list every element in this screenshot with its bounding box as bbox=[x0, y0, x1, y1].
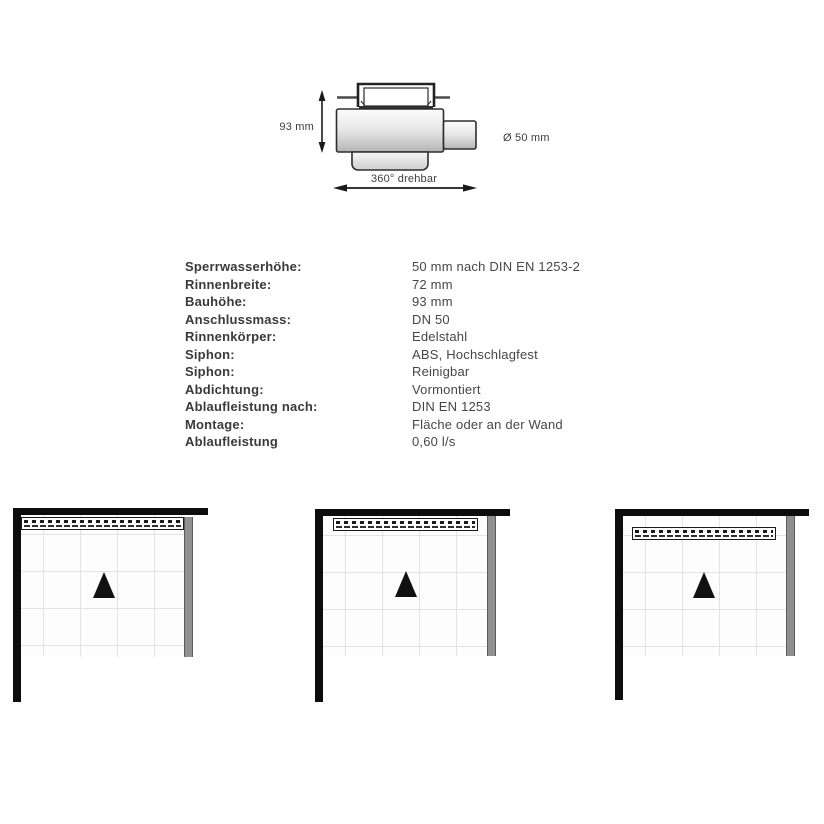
spec-label: Siphon: bbox=[185, 363, 412, 381]
drain-base bbox=[352, 152, 428, 170]
spec-value: 93 mm bbox=[412, 293, 615, 311]
spec-value: DN 50 bbox=[412, 311, 615, 329]
drain-grate bbox=[358, 84, 434, 109]
channel-grate-pattern bbox=[24, 525, 181, 527]
spec-row: Ablaufleistung0,60 l/s bbox=[185, 433, 615, 451]
spec-label: Rinnenkörper: bbox=[185, 328, 412, 346]
spec-value: 72 mm bbox=[412, 276, 615, 294]
drain-channel-strip bbox=[333, 518, 478, 531]
channel-grate-pattern bbox=[336, 521, 475, 524]
spec-row: Siphon:Reinigbar bbox=[185, 363, 615, 381]
slope-triangle bbox=[693, 572, 715, 598]
technical-drawing: 93 mm Ø 50 mm 360° drehbar bbox=[270, 78, 560, 196]
glass-panel bbox=[786, 516, 795, 656]
spec-value: 50 mm nach DIN EN 1253-2 bbox=[412, 258, 615, 276]
spec-row: Siphon:ABS, Hochschlagfest bbox=[185, 346, 615, 364]
spec-value: Vormontiert bbox=[412, 381, 615, 399]
spec-value: DIN EN 1253 bbox=[412, 398, 615, 416]
rotation-label: 360° drehbar bbox=[371, 173, 437, 185]
datasheet-page: 93 mm Ø 50 mm 360° drehbar Sperrwasserhö… bbox=[0, 0, 824, 824]
wall-top bbox=[13, 508, 208, 515]
drain-channel-strip bbox=[21, 517, 184, 530]
drain-channel-strip bbox=[632, 527, 776, 540]
spec-value: Fläche oder an der Wand bbox=[412, 416, 615, 434]
spec-label: Abdichtung: bbox=[185, 381, 412, 399]
wall-top bbox=[615, 509, 809, 516]
rotation-dimension-arrow bbox=[333, 184, 477, 191]
wall-left bbox=[315, 509, 323, 702]
spec-row: Sperrwasserhöhe:50 mm nach DIN EN 1253-2 bbox=[185, 258, 615, 276]
spec-row: Anschlussmass:DN 50 bbox=[185, 311, 615, 329]
glass-panel bbox=[487, 516, 496, 656]
drain-outlet-pipe bbox=[444, 121, 477, 149]
spec-value: Reinigbar bbox=[412, 363, 615, 381]
drain-body bbox=[337, 109, 444, 152]
height-dimension-label: 93 mm bbox=[279, 121, 314, 133]
slope-triangle bbox=[93, 572, 115, 598]
glass-panel bbox=[184, 517, 193, 657]
height-dimension-arrow bbox=[319, 90, 326, 153]
spec-value: 0,60 l/s bbox=[412, 433, 615, 451]
wall-top bbox=[315, 509, 510, 516]
spec-label: Montage: bbox=[185, 416, 412, 434]
spec-label: Anschlussmass: bbox=[185, 311, 412, 329]
spec-label: Sperrwasserhöhe: bbox=[185, 258, 412, 276]
spec-label: Ablaufleistung nach: bbox=[185, 398, 412, 416]
spec-label: Ablaufleistung bbox=[185, 433, 412, 451]
channel-grate-pattern bbox=[336, 526, 475, 528]
wall-left bbox=[615, 509, 623, 700]
spec-label: Siphon: bbox=[185, 346, 412, 364]
wall-left bbox=[13, 508, 21, 702]
outlet-diameter-label: Ø 50 mm bbox=[503, 132, 550, 144]
spec-row: Montage:Fläche oder an der Wand bbox=[185, 416, 615, 434]
channel-grate-pattern bbox=[635, 530, 773, 533]
spec-label: Rinnenbreite: bbox=[185, 276, 412, 294]
spec-value: Edelstahl bbox=[412, 328, 615, 346]
channel-grate-pattern bbox=[635, 535, 773, 537]
spec-value: ABS, Hochschlagfest bbox=[412, 346, 615, 364]
channel-grate-pattern bbox=[24, 520, 181, 523]
spec-row: Ablaufleistung nach:DIN EN 1253 bbox=[185, 398, 615, 416]
spec-label: Bauhöhe: bbox=[185, 293, 412, 311]
spec-row: Rinnenkörper:Edelstahl bbox=[185, 328, 615, 346]
spec-row: Bauhöhe:93 mm bbox=[185, 293, 615, 311]
specs-table: Sperrwasserhöhe:50 mm nach DIN EN 1253-2… bbox=[185, 258, 615, 451]
slope-triangle bbox=[395, 571, 417, 597]
spec-row: Rinnenbreite:72 mm bbox=[185, 276, 615, 294]
spec-row: Abdichtung:Vormontiert bbox=[185, 381, 615, 399]
